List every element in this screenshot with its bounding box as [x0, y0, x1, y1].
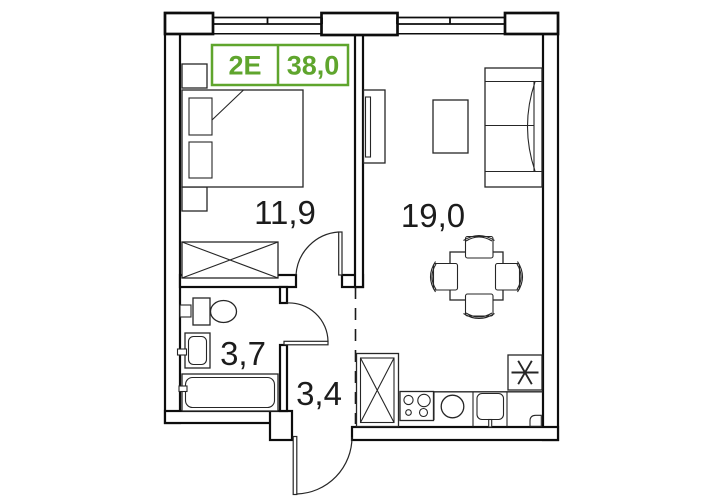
chair-seat [496, 264, 520, 291]
toilet-tank [193, 298, 210, 325]
wall-bathroom-right-upper [280, 287, 287, 303]
bedroom-furniture [182, 64, 303, 278]
bathroom-door [284, 303, 328, 345]
corner-pipe-icon [530, 415, 541, 426]
wall-partition-living [355, 33, 363, 287]
wall-bathroom-right-lower [280, 345, 287, 411]
door-leaf [339, 232, 342, 275]
pier-top-center [322, 13, 398, 35]
unit-area-label: 38,0 [287, 51, 340, 81]
living-area-label: 19,0 [401, 197, 465, 234]
wardrobe-icon [182, 242, 278, 278]
door-swing-arc [297, 437, 352, 494]
chair-icon-left [431, 262, 458, 293]
unit-badge: 2E 38,0 [212, 45, 348, 85]
door-swing-arc [296, 232, 339, 275]
hallway-area-label: 3,4 [296, 375, 342, 412]
living-furniture [364, 68, 543, 319]
chair-icon-right [496, 262, 523, 293]
sink-tap [489, 420, 492, 428]
side-table-icon [433, 100, 468, 153]
bathtub-tap [179, 386, 187, 392]
window-living [397, 18, 505, 25]
pillow [189, 142, 212, 178]
pier-top-right [505, 13, 558, 34]
wall-left [165, 13, 180, 423]
bathroom-area-label: 3,7 [220, 335, 266, 372]
wall-bottom-right [352, 427, 558, 440]
kitchen-fixtures [357, 354, 544, 428]
tv-unit-icon [364, 90, 386, 163]
entrance-door [293, 437, 352, 495]
sofa-icon [485, 68, 542, 187]
washing-machine-icon [441, 395, 464, 418]
pier-top-left [165, 13, 213, 34]
bedroom-area-label: 11,9 [254, 194, 316, 231]
nightstand-icon [182, 64, 207, 88]
chair-seat [434, 264, 458, 291]
basin-bowl [189, 337, 207, 365]
washbasin-icon [178, 333, 211, 368]
floor-plan-page: 2E 38,0 11,9 19,0 3,7 3,4 [0, 0, 725, 500]
chair-icon-top [464, 236, 495, 259]
door-leaf [284, 341, 328, 345]
bed-icon [182, 90, 303, 187]
kitchen-sink-icon [477, 394, 504, 428]
tv-screen [366, 97, 371, 157]
vent-shaft-icon [508, 355, 542, 390]
wall-bottom-step [270, 411, 292, 440]
chair-icon-bottom [464, 294, 495, 319]
bedroom-door [296, 232, 342, 275]
door-leaf [293, 437, 297, 495]
doors [284, 232, 352, 495]
chair-seat [466, 294, 494, 316]
wall-right [543, 13, 558, 440]
door-swing-arc [287, 303, 329, 341]
fridge-icon [357, 354, 399, 427]
toilet-icon [180, 298, 237, 325]
window-bedroom [213, 18, 322, 25]
bathtub-inner [186, 378, 275, 408]
unit-type-label: 2E [228, 51, 261, 81]
floor-plan-canvas: 2E 38,0 11,9 19,0 3,7 3,4 [0, 0, 725, 500]
bathtub-icon [179, 374, 278, 411]
nightstand-icon [182, 187, 207, 211]
dining-set-icon [431, 236, 523, 319]
pillow [189, 98, 212, 135]
sink-bowl [477, 394, 504, 420]
cooktop-icon [400, 392, 434, 421]
toilet-wall-block [180, 305, 191, 317]
toilet-bowl [211, 301, 237, 323]
basin-tap [178, 349, 187, 355]
wall-bottom-left [165, 411, 272, 423]
